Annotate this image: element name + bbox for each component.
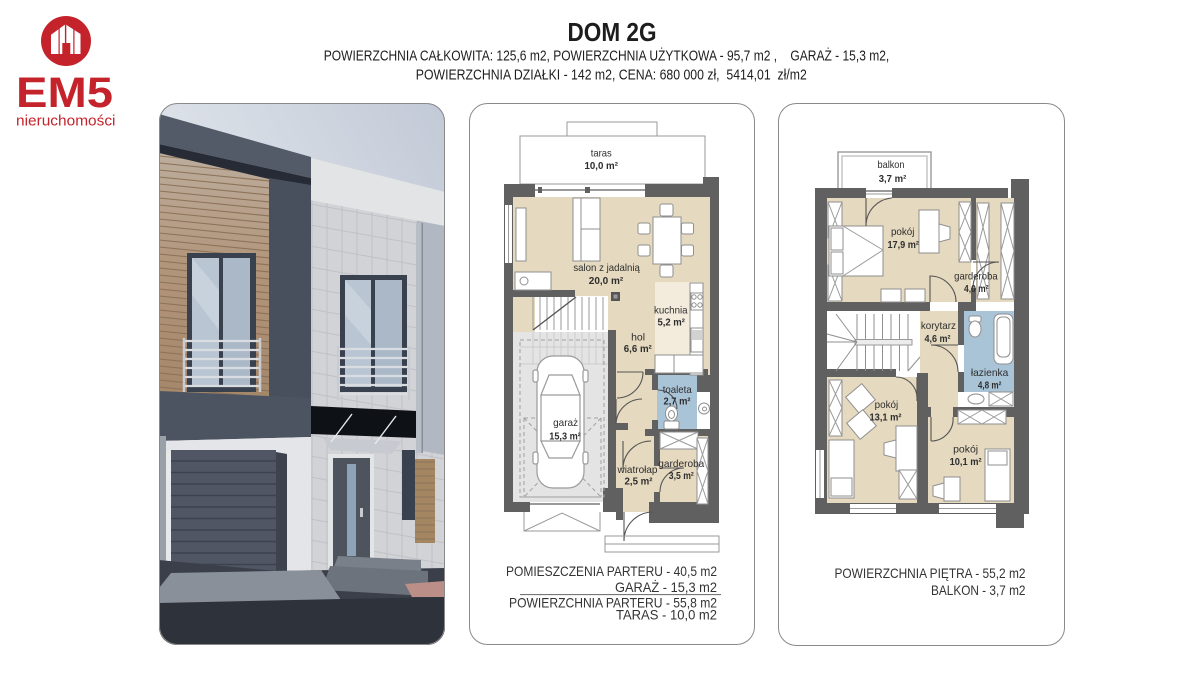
svg-text:POWIERZCHNIA PIĘTRA - 55,2 m2: POWIERZCHNIA PIĘTRA - 55,2 m2 (835, 565, 1026, 581)
svg-text:2,7 m²: 2,7 m² (664, 396, 691, 408)
svg-text:15,3 m²: 15,3 m² (549, 431, 581, 443)
svg-text:garderoba: garderoba (954, 271, 998, 283)
svg-text:6,6 m²: 6,6 m² (624, 343, 652, 355)
svg-text:3,5 m²: 3,5 m² (669, 470, 694, 482)
svg-text:3,7 m²: 3,7 m² (879, 173, 907, 185)
svg-text:4,8 m²: 4,8 m² (978, 380, 1002, 392)
svg-text:toaleta: toaleta (663, 384, 692, 396)
svg-text:garaż: garaż (553, 417, 578, 429)
svg-text:2,5 m²: 2,5 m² (625, 476, 653, 488)
svg-text:DOM 2G: DOM 2G (568, 17, 657, 47)
svg-text:13,1 m²: 13,1 m² (870, 412, 902, 424)
svg-text:pokój: pokój (953, 444, 978, 456)
svg-text:pokój: pokój (875, 399, 899, 411)
svg-text:4,6 m²: 4,6 m² (925, 333, 951, 345)
svg-text:17,9 m²: 17,9 m² (887, 239, 919, 251)
svg-text:POMIESZCZENIA PARTERU - 40,5 m: POMIESZCZENIA PARTERU - 40,5 m2 (506, 563, 717, 579)
svg-text:10,0 m²: 10,0 m² (584, 160, 618, 172)
svg-text:GARAŻ - 15,3 m2: GARAŻ - 15,3 m2 (615, 578, 717, 595)
svg-text:salon z jadalnią: salon z jadalnią (573, 262, 640, 274)
svg-text:wiatrołap: wiatrołap (617, 464, 658, 476)
svg-text:hol: hol (631, 332, 645, 344)
svg-text:EM5: EM5 (16, 70, 113, 117)
svg-text:łazienka: łazienka (971, 367, 1009, 379)
svg-text:balkon: balkon (878, 159, 905, 171)
svg-text:4,0 m²: 4,0 m² (964, 283, 989, 295)
svg-text:5,2 m²: 5,2 m² (657, 317, 685, 329)
svg-text:taras: taras (591, 148, 612, 160)
svg-text:POWIERZCHNIA CAŁKOWITA: 125,6: POWIERZCHNIA CAŁKOWITA: 125,6 m2, POWIER… (324, 47, 890, 65)
svg-text:TARAS - 10,0 m2: TARAS - 10,0 m2 (616, 606, 717, 622)
svg-text:korytarz: korytarz (921, 320, 956, 332)
svg-text:pokój: pokój (891, 226, 915, 238)
svg-text:20,0 m²: 20,0 m² (589, 275, 624, 287)
svg-text:POWIERZCHNIA DZIAŁKI - 142 m2,: POWIERZCHNIA DZIAŁKI - 142 m2, CENA: 680… (416, 68, 807, 84)
svg-text:nieruchomości: nieruchomości (16, 114, 115, 130)
svg-text:10,1 m²: 10,1 m² (950, 456, 982, 468)
svg-text:kuchnia: kuchnia (654, 305, 688, 317)
svg-text:garderoba: garderoba (658, 458, 704, 470)
svg-text:BALKON - 3,7 m2: BALKON - 3,7 m2 (931, 582, 1026, 598)
